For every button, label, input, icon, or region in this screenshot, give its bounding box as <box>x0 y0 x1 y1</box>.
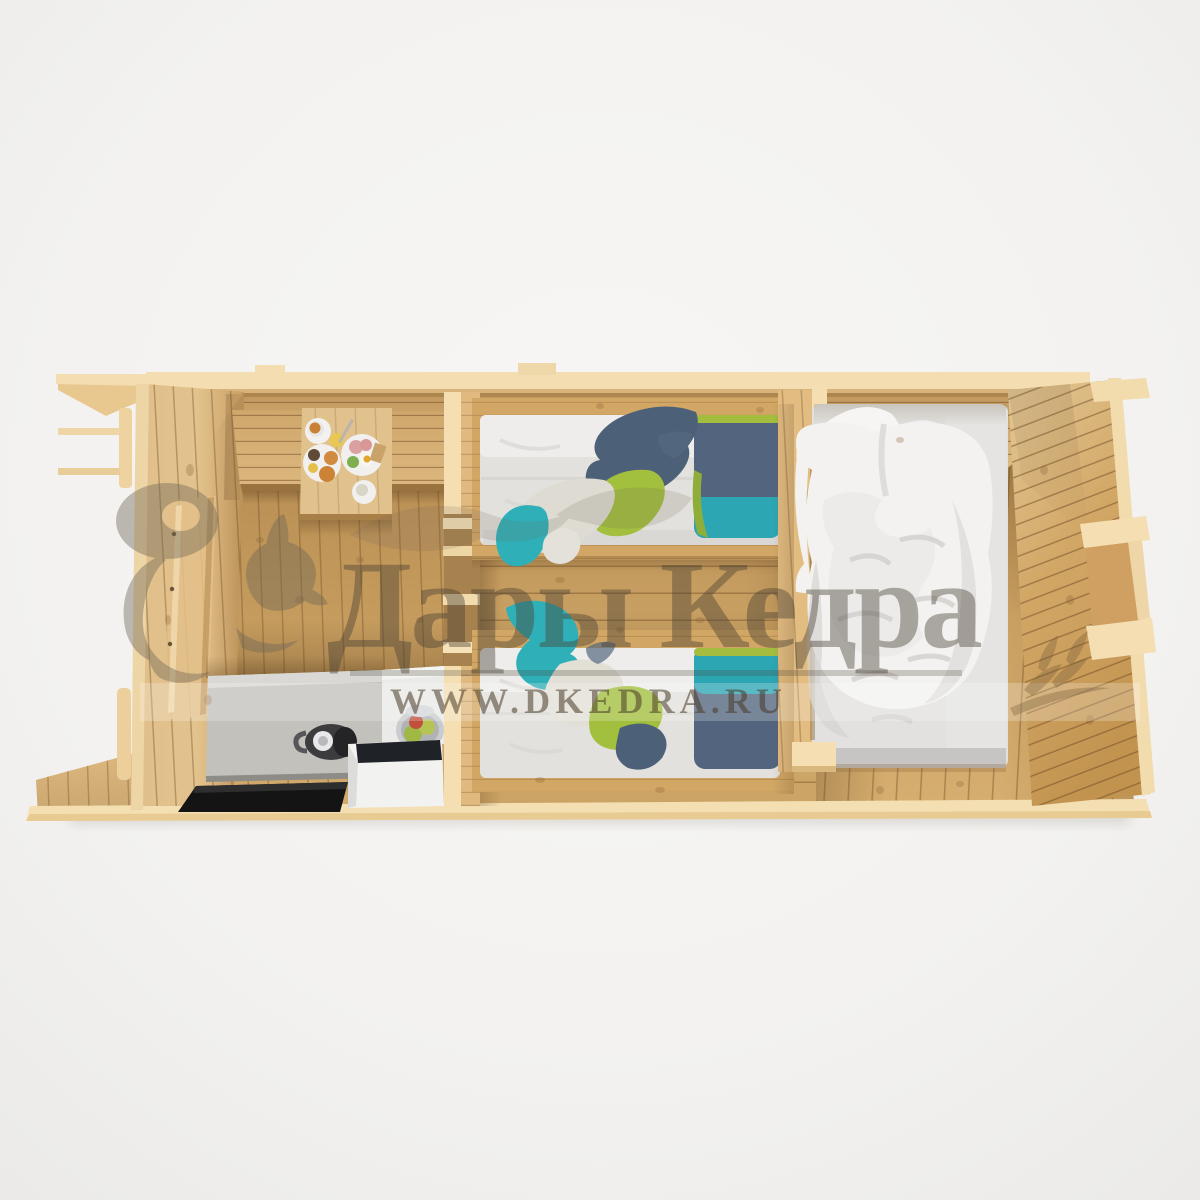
svg-text:Дары Кедра: Дары Кедра <box>327 537 983 675</box>
